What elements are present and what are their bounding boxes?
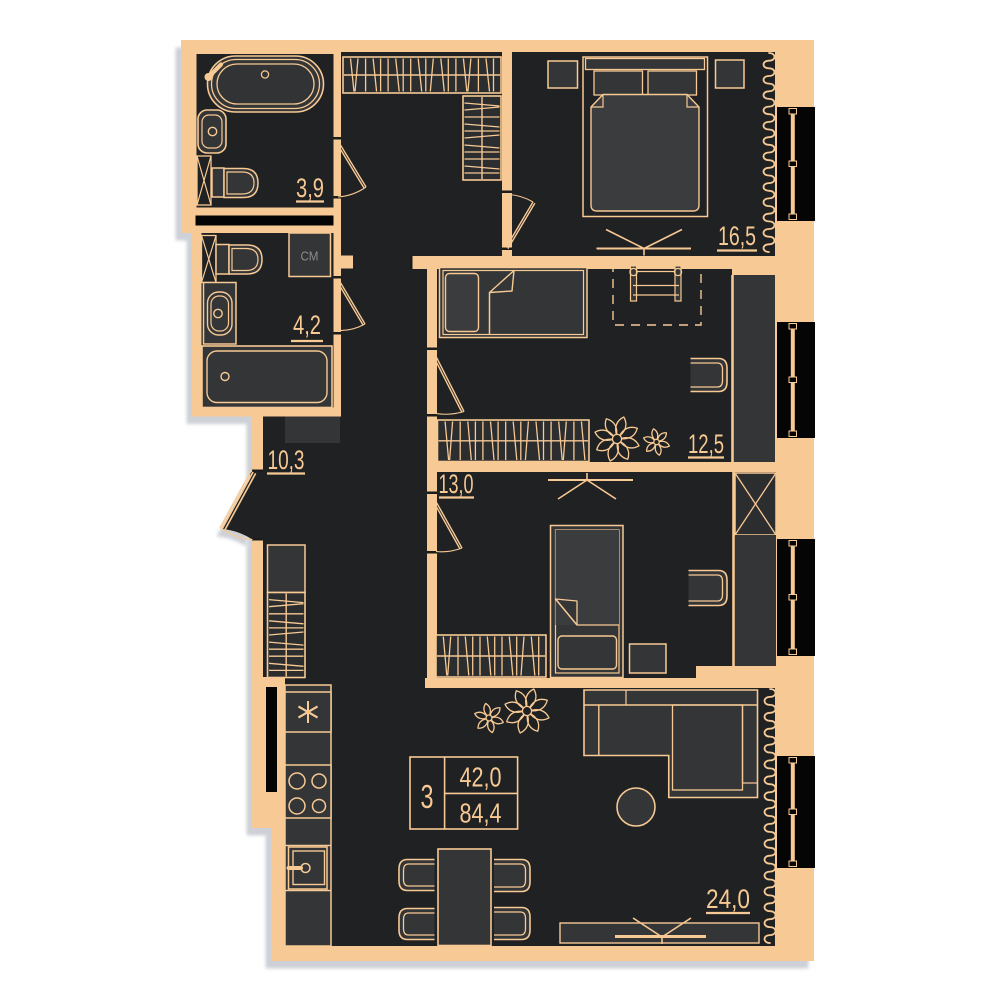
svg-text:84,4: 84,4 [460,798,502,829]
svg-text:3: 3 [421,778,434,815]
svg-text:3,9: 3,9 [296,173,324,203]
svg-text:4,2: 4,2 [293,310,321,340]
svg-text:СМ: СМ [301,249,319,264]
svg-text:12,5: 12,5 [688,429,724,459]
svg-text:42,0: 42,0 [460,762,502,793]
svg-text:24,0: 24,0 [706,884,750,914]
svg-text:16,5: 16,5 [718,221,756,251]
svg-text:10,3: 10,3 [268,445,305,475]
svg-text:13,0: 13,0 [439,469,474,499]
